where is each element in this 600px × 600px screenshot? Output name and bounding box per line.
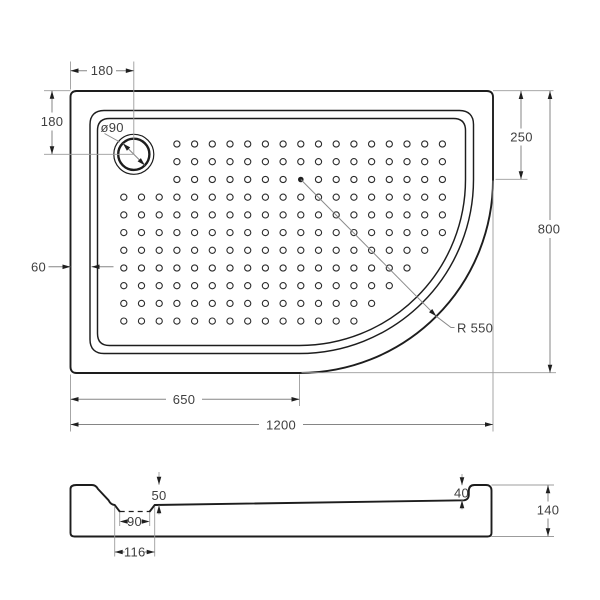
- drawing-page: 180 180 250 800 60 650 1200 R 550 ø90: [0, 0, 600, 600]
- plan-view: 180 180 250 800 60 650 1200 R 550 ø90: [31, 62, 560, 433]
- dim-corner-radius-label: R 550: [457, 321, 493, 336]
- dim-recess-top-width-label: 116: [124, 545, 146, 560]
- dim-drain-diameter-label: ø90: [101, 120, 124, 135]
- dim-rim-width-label: 60: [31, 259, 46, 274]
- dim-corner-offset-top-label: 250: [510, 130, 533, 145]
- dim-corner-center-x-label: 650: [173, 392, 196, 407]
- dim-recess-bottom-width-label: 90: [127, 514, 142, 529]
- dim-drain-offset-left-label: 180: [41, 114, 64, 129]
- dim-section-height-label: 140: [537, 503, 560, 518]
- plan-extension-lines: [44, 62, 556, 432]
- technical-drawing-canvas: 180 180 250 800 60 650 1200 R 550 ø90: [0, 0, 600, 600]
- dim-depth-at-drain-label: 50: [151, 488, 166, 503]
- anti-slip-dot-pattern: [121, 141, 446, 324]
- section-view: 50 40 90 116 140: [71, 472, 560, 560]
- dim-drain-offset-top-label: 180: [91, 63, 114, 78]
- dim-overall-width-label: 1200: [266, 417, 296, 432]
- section-dimension-lines: [115, 485, 548, 552]
- dim-overall-depth-label: 800: [538, 222, 561, 237]
- dim-depth-at-edge-label: 40: [454, 485, 469, 500]
